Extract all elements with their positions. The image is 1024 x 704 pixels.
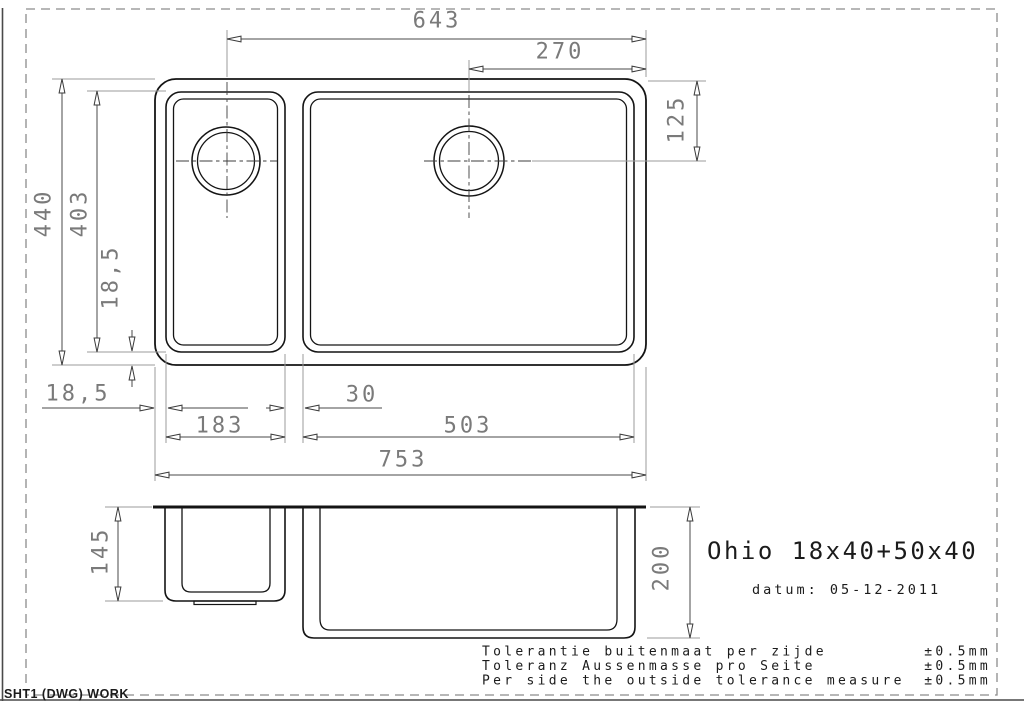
- side-view: [153, 507, 646, 638]
- dim-label-403: 403: [68, 189, 93, 238]
- tolerance-line-en: Per side the outside tolerance measure: [482, 674, 905, 689]
- side-small-bowl-inner: [182, 507, 270, 592]
- dim-label-753: 753: [379, 448, 428, 473]
- tolerance-value-nl: ±0.5mm: [924, 645, 991, 660]
- date-line: datum: 05-12-2011: [752, 582, 941, 598]
- side-large-bowl-outer: [303, 507, 635, 638]
- dim-label-18-5-left: 18,5: [99, 245, 124, 310]
- side-large-bowl-inner: [320, 507, 617, 630]
- dim-label-183: 183: [196, 414, 245, 439]
- dim-label-145: 145: [89, 527, 114, 576]
- tolerance-value-de: ±0.5mm: [924, 659, 991, 674]
- dim-label-30: 30: [346, 383, 379, 408]
- small-bowl-outline: [166, 92, 285, 352]
- dimension-labels: 643 270 125 440 403 18,5 18,5 183 30 503…: [32, 9, 690, 592]
- side-small-bowl-drain: [194, 601, 256, 605]
- tolerance-value-en: ±0.5mm: [924, 674, 991, 689]
- dim-label-643: 643: [413, 9, 462, 34]
- model-name: Ohio 18x40+50x40: [707, 537, 978, 565]
- dim-label-270: 270: [536, 40, 585, 65]
- dim-label-440: 440: [32, 189, 57, 238]
- dimension-lines: [42, 39, 697, 638]
- title-block: Ohio 18x40+50x40 datum: 05-12-2011: [707, 537, 978, 598]
- dim-label-18-5-bottom: 18,5: [46, 382, 111, 407]
- extension-lines: [52, 30, 706, 638]
- dim-label-503: 503: [444, 414, 493, 439]
- small-bowl-inner-outline: [174, 99, 278, 345]
- dim-label-200: 200: [650, 543, 675, 592]
- tolerance-note: Tolerantie buitenmaat per zijde ±0.5mm T…: [482, 645, 991, 689]
- tolerance-line-nl: Tolerantie buitenmaat per zijde: [482, 645, 827, 660]
- top-view: [155, 79, 646, 365]
- sheet-label: SHT1 (DWG) WORK: [4, 687, 129, 701]
- sink-technical-drawing: 643 270 125 440 403 18,5 18,5 183 30 503…: [0, 0, 1024, 704]
- tolerance-line-de: Toleranz Aussenmasse pro Seite: [482, 659, 816, 674]
- sink-outer-rim: [155, 79, 646, 365]
- dim-label-125: 125: [665, 95, 690, 144]
- large-bowl-inner-outline: [311, 99, 627, 345]
